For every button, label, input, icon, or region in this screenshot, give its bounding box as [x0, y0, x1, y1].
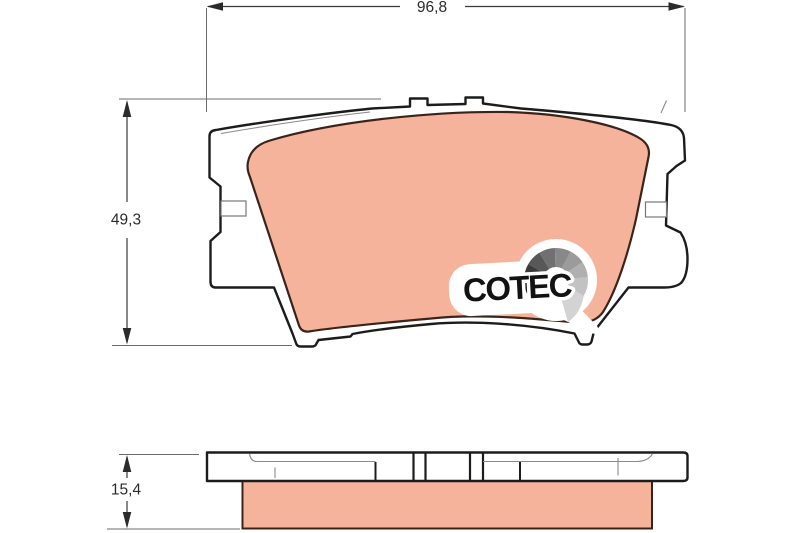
arrowhead-right: [669, 2, 686, 10]
arrowhead-top: [123, 100, 132, 117]
dimension-thickness-label: 15,4: [111, 482, 142, 499]
side-view: 15,4: [107, 453, 688, 530]
friction-material-side: [243, 481, 653, 529]
dimension-width-label: 96,8: [417, 0, 447, 16]
abutment-notch-right: [646, 202, 667, 217]
backing-plate-side: [207, 453, 688, 482]
brake-pad-technical-drawing: 96,8 49,3: [0, 0, 800, 533]
arrowhead-bottom: [123, 512, 132, 529]
cotec-logo-text: COTEC: [462, 266, 572, 309]
arrowhead-top: [123, 455, 132, 472]
front-view: 96,8 49,3: [111, 0, 688, 347]
plate-corner-tick: [661, 101, 667, 114]
dimension-height-label: 49,3: [111, 212, 141, 229]
abutment-notch-left: [221, 201, 246, 216]
dimension-width: 96,8: [207, 0, 686, 112]
arrowhead-bottom: [123, 328, 132, 345]
arrowhead-left: [207, 2, 224, 10]
